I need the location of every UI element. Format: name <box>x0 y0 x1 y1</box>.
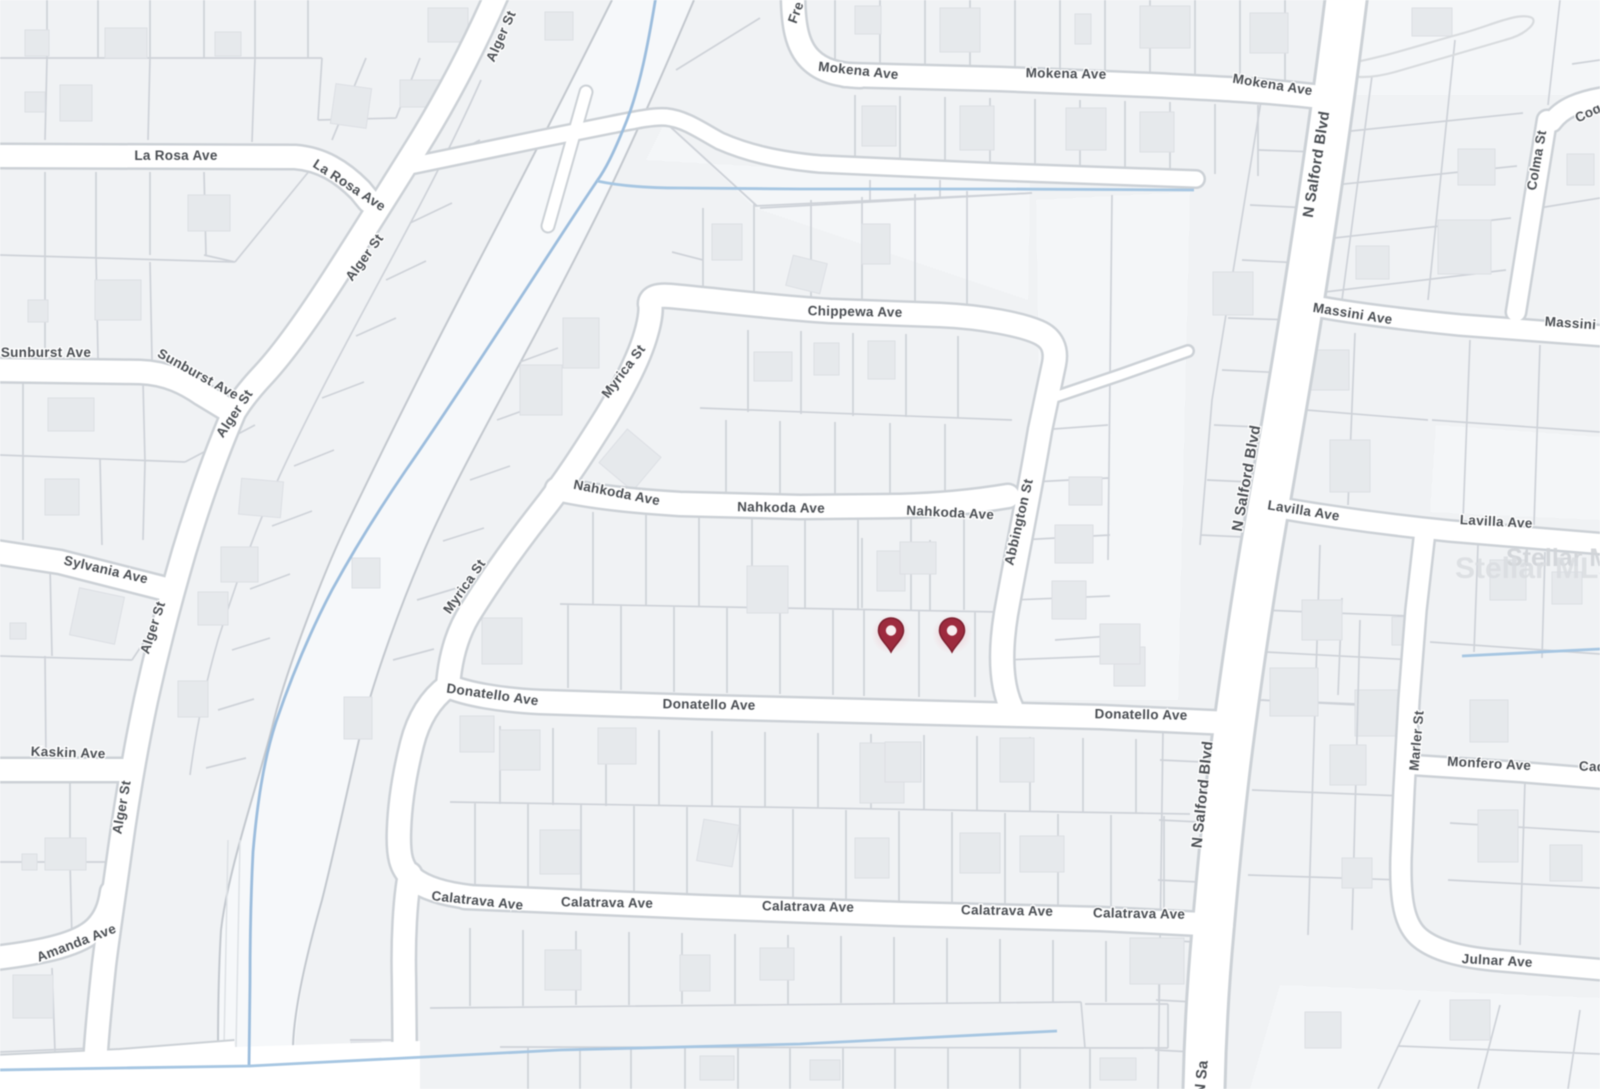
svg-text:Stellar MLS: Stellar MLS <box>1455 552 1600 585</box>
svg-text:Calatrava Ave: Calatrava Ave <box>762 898 855 915</box>
svg-text:Cad: Cad <box>1579 759 1600 775</box>
svg-text:Donatello Ave: Donatello Ave <box>1094 706 1187 723</box>
svg-text:Calatrava Ave: Calatrava Ave <box>561 894 654 911</box>
svg-text:Sunburst Ave: Sunburst Ave <box>1 345 92 360</box>
svg-text:La Rosa Ave: La Rosa Ave <box>134 148 218 163</box>
svg-text:Calatrava Ave: Calatrava Ave <box>1093 905 1186 922</box>
svg-text:Nahkoda Ave: Nahkoda Ave <box>737 499 825 516</box>
svg-text:Mokena Ave: Mokena Ave <box>1026 65 1107 81</box>
svg-text:Chippewa Ave: Chippewa Ave <box>808 303 903 320</box>
svg-text:Kaskin Ave: Kaskin Ave <box>31 744 106 762</box>
svg-text:N Sa: N Sa <box>1191 1059 1212 1089</box>
svg-text:Calatrava Ave: Calatrava Ave <box>961 902 1054 919</box>
svg-text:Donatello Ave: Donatello Ave <box>662 696 755 713</box>
